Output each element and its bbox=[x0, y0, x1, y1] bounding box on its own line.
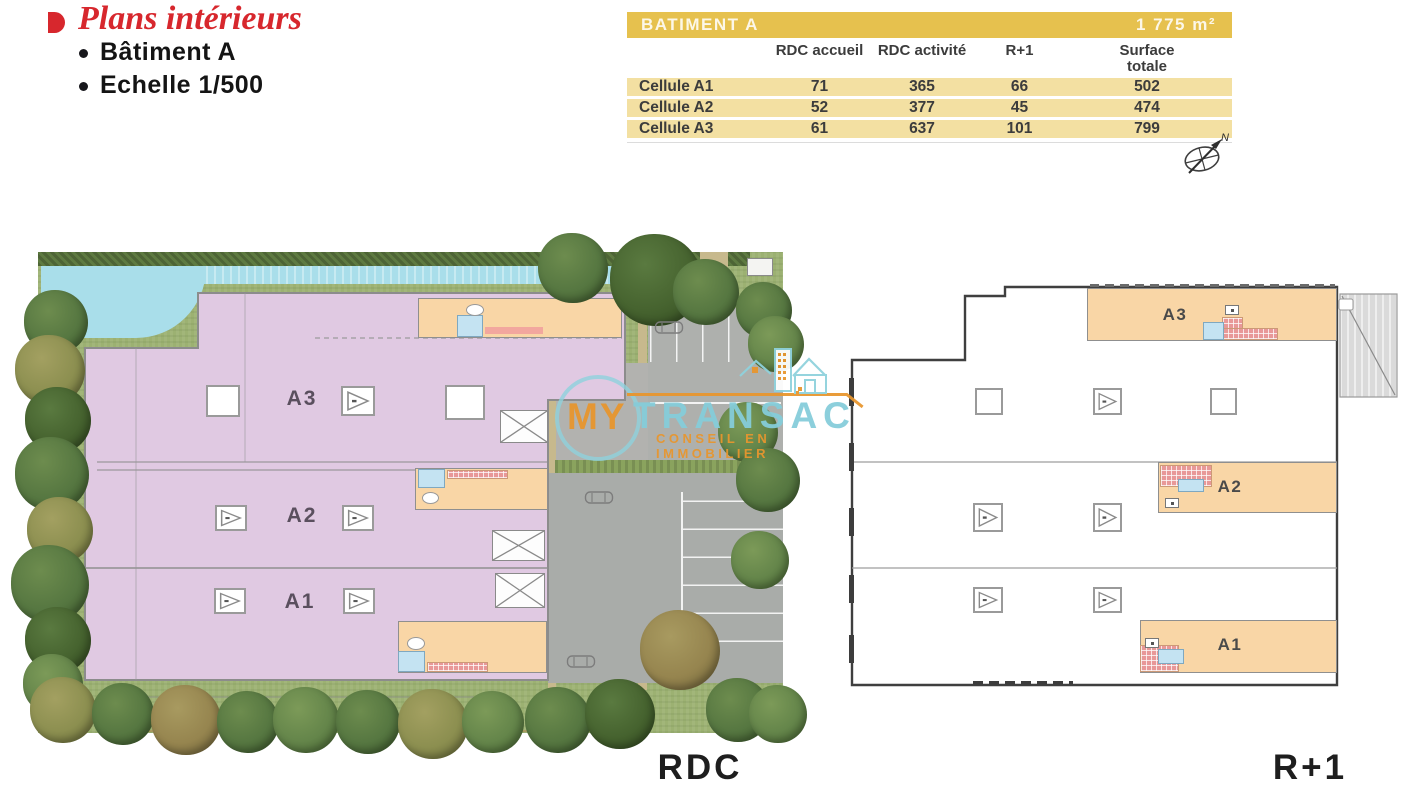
bathroom bbox=[1158, 649, 1184, 664]
skylight-symbol bbox=[975, 388, 1003, 415]
row-label: Cellule A1 bbox=[627, 78, 772, 96]
red-bullet-marker-icon bbox=[48, 12, 65, 33]
cell: 66 bbox=[977, 78, 1062, 96]
car-symbol bbox=[654, 320, 684, 335]
cell: 52 bbox=[772, 99, 867, 117]
cell: 377 bbox=[867, 99, 977, 117]
table-row: Cellule A3 61 637 101 799 bbox=[627, 120, 1232, 138]
r1-room-a2-label: A2 bbox=[1205, 477, 1255, 497]
stair-hatch-a2 bbox=[447, 470, 508, 479]
page-title: Plans intérieurs bbox=[78, 0, 302, 38]
wall-tick bbox=[849, 635, 854, 663]
tree bbox=[538, 233, 608, 303]
tree bbox=[640, 610, 720, 690]
bullet-dot-icon bbox=[79, 82, 88, 91]
table-title-band: BATIMENT A 1 775 m² bbox=[627, 12, 1232, 38]
fixture-symbol bbox=[1145, 638, 1159, 648]
skylight-vent-symbol bbox=[973, 503, 1003, 532]
cell: 61 bbox=[772, 120, 867, 138]
cell: 101 bbox=[977, 120, 1062, 138]
car-symbol bbox=[566, 654, 596, 669]
wall-dashes bbox=[973, 681, 1073, 685]
stair-stripe-a3 bbox=[485, 327, 543, 334]
skylight-vent-symbol bbox=[1093, 388, 1122, 415]
table-row: Cellule A1 71 365 66 502 bbox=[627, 78, 1232, 96]
fixture-symbol bbox=[1225, 305, 1239, 315]
page: Plans intérieurs Bâtiment A Echelle 1/50… bbox=[0, 0, 1422, 800]
table-title: BATIMENT A bbox=[641, 15, 759, 35]
skylight-vent-symbol bbox=[342, 505, 374, 531]
bullet-dot-icon bbox=[79, 49, 88, 58]
building-name: Bâtiment A bbox=[100, 38, 236, 67]
col-header: RDC accueil bbox=[772, 38, 867, 75]
bathroom bbox=[1203, 322, 1224, 340]
rdc-zone-a3-label: A3 bbox=[270, 387, 334, 411]
scale-note: Echelle 1/500 bbox=[100, 71, 264, 100]
north-compass-icon: N bbox=[1178, 132, 1232, 180]
skylight-symbol bbox=[445, 385, 485, 420]
stair-hatch bbox=[1222, 328, 1278, 340]
row-label: Cellule A2 bbox=[627, 99, 772, 117]
tree bbox=[273, 687, 339, 753]
skylight-vent-symbol bbox=[341, 386, 375, 416]
cell: 474 bbox=[1062, 99, 1232, 117]
stair-hatch-a1 bbox=[427, 662, 488, 672]
tree bbox=[749, 685, 807, 743]
skylight-vent-symbol bbox=[343, 588, 375, 614]
col-header-empty bbox=[627, 38, 772, 75]
r1-room-a1-label: A1 bbox=[1205, 635, 1255, 655]
table-underline bbox=[627, 142, 1232, 143]
cell: 502 bbox=[1062, 78, 1232, 96]
bathroom bbox=[1178, 479, 1204, 492]
watermark-logo: MY TRANSAC CONSEIL EN IMMOBILIER bbox=[545, 346, 880, 461]
tree bbox=[585, 679, 655, 749]
fixture-symbol bbox=[1165, 498, 1179, 508]
r1-room-a3-label: A3 bbox=[1150, 305, 1200, 325]
wall-tick bbox=[849, 508, 854, 536]
surface-table: BATIMENT A 1 775 m² RDC accueil RDC acti… bbox=[627, 12, 1232, 143]
skylight-symbol bbox=[206, 385, 240, 417]
table-row: Cellule A2 52 377 45 474 bbox=[627, 99, 1232, 117]
brand-name-first: MY bbox=[567, 396, 627, 438]
tree bbox=[673, 259, 739, 325]
skylight-vent-symbol bbox=[973, 587, 1003, 613]
wall-dashes bbox=[1090, 284, 1335, 287]
toilet-fixture bbox=[407, 637, 425, 650]
cell: 637 bbox=[867, 120, 977, 138]
toilet-fixture bbox=[466, 304, 484, 316]
rdc-zone-a2-label: A2 bbox=[270, 504, 334, 528]
skylight-vent-symbol bbox=[1093, 503, 1122, 532]
tree bbox=[398, 689, 468, 759]
bathroom-a1 bbox=[398, 651, 425, 672]
skylight-vent-symbol bbox=[1093, 587, 1122, 613]
loading-dock-symbol bbox=[495, 573, 545, 608]
col-header: Surface totale bbox=[1102, 38, 1192, 75]
bathroom-a3 bbox=[457, 315, 483, 337]
tree bbox=[217, 691, 279, 753]
row-label: Cellule A3 bbox=[627, 120, 772, 138]
car-symbol bbox=[584, 490, 614, 505]
r1-floor-label: R+1 bbox=[1210, 748, 1410, 788]
col-header: R+1 bbox=[977, 38, 1062, 75]
col-header: RDC activité bbox=[867, 38, 977, 75]
tree bbox=[151, 685, 221, 755]
rdc-floor-label: RDC bbox=[600, 748, 800, 788]
tree bbox=[525, 687, 591, 753]
toilet-fixture bbox=[422, 492, 439, 504]
cell: 365 bbox=[867, 78, 977, 96]
table-total-area: 1 775 m² bbox=[1136, 15, 1216, 35]
cell: 71 bbox=[772, 78, 867, 96]
ramp-door bbox=[1339, 299, 1353, 310]
tree bbox=[30, 677, 96, 743]
tree bbox=[731, 531, 789, 589]
compass-north-label: N bbox=[1221, 132, 1229, 144]
brand-tagline: CONSEIL EN IMMOBILIER bbox=[656, 431, 880, 461]
skylight-vent-symbol bbox=[214, 588, 246, 614]
wall-tick bbox=[849, 575, 854, 603]
cell: 45 bbox=[977, 99, 1062, 117]
rdc-floor-plan: A3 A2 A1 bbox=[38, 252, 783, 772]
bathroom-a2 bbox=[418, 469, 445, 488]
skylight-symbol bbox=[1210, 388, 1237, 415]
r1-floor-plan: A3 A2 A1 bbox=[845, 283, 1403, 690]
tree bbox=[336, 690, 400, 754]
tree bbox=[462, 691, 524, 753]
loading-dock-symbol bbox=[500, 410, 548, 443]
table-header-row: RDC accueil RDC activité R+1 Surface tot… bbox=[627, 38, 1232, 75]
tree bbox=[92, 683, 154, 745]
logo-buildings-icon bbox=[735, 346, 835, 404]
rdc-zone-a1-label: A1 bbox=[268, 590, 332, 614]
skylight-vent-symbol bbox=[215, 505, 247, 531]
loading-dock-symbol bbox=[492, 530, 545, 561]
